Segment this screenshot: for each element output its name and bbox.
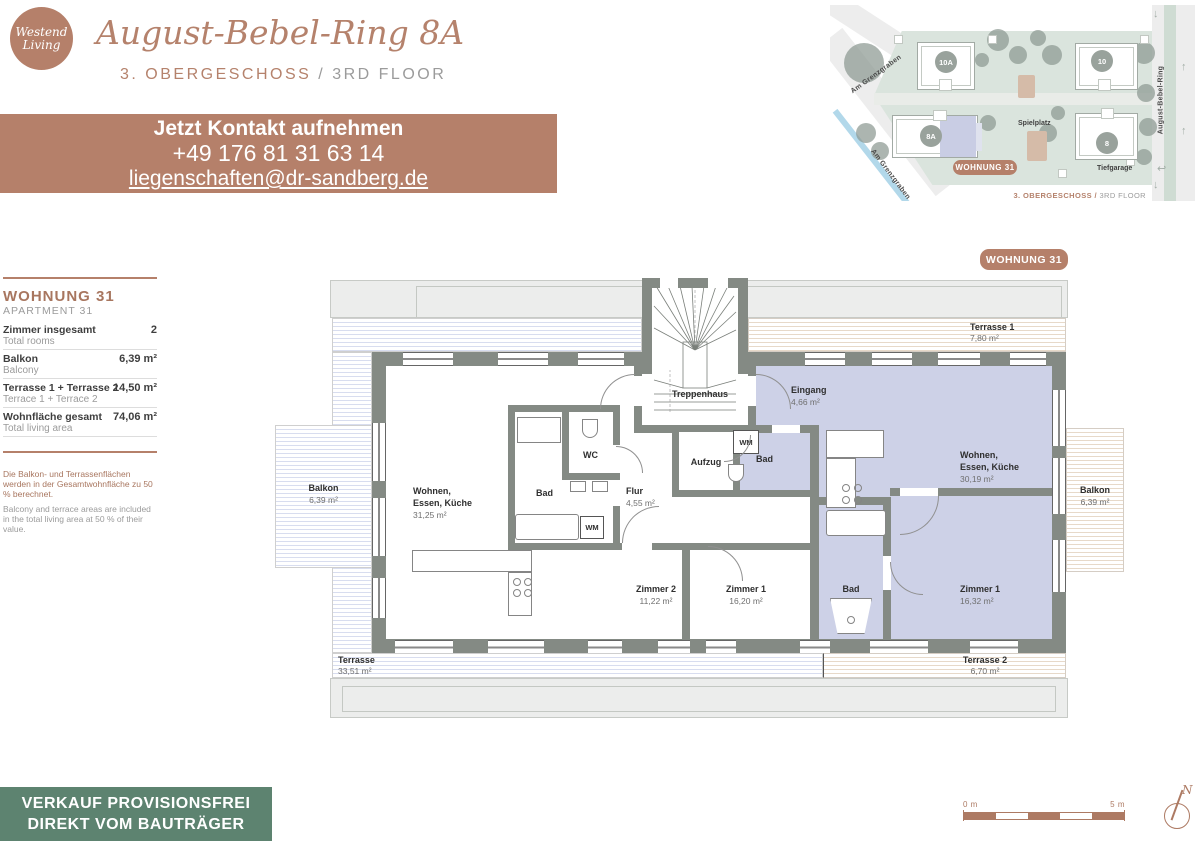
wall (738, 278, 748, 374)
sale-banner-line1: VERKAUF PROVISIONSFREI (22, 793, 251, 814)
window (498, 352, 548, 366)
logo-line1: Westend (16, 26, 68, 39)
info-title-en: APARTMENT 31 (3, 305, 157, 317)
shower (517, 417, 561, 443)
info-note-de: Die Balkon- und Terrassenflächen werden … (3, 469, 157, 499)
bathtub (515, 514, 579, 540)
scale-bar-segments (963, 812, 1125, 820)
wall (613, 405, 620, 445)
stove-burner (524, 589, 532, 597)
room-area: 6,39 m² (275, 495, 372, 505)
room-area: 6,39 m² (1066, 497, 1124, 507)
map-apartment-badge: WOHNUNG 31 (953, 160, 1017, 175)
door-opening (900, 488, 938, 496)
sink (570, 481, 586, 492)
building-8-label: 8 (1096, 132, 1118, 154)
site-detail-square (1058, 169, 1067, 178)
building-8-entrance (1101, 108, 1114, 119)
info-row-value: 6,39 m² (119, 353, 157, 365)
window (872, 352, 912, 366)
room-label: Balkon (275, 483, 372, 493)
room-label: Terrasse 2 (930, 655, 1040, 665)
room-label: Bad (536, 488, 553, 498)
contact-banner: Jetzt Kontakt aufnehmen +49 176 81 31 63… (0, 114, 557, 193)
door-opening (772, 425, 800, 433)
stove-burner (842, 484, 850, 492)
room-label: Bad (830, 584, 872, 594)
room-label: Bad (756, 454, 773, 464)
map-caption-de: 3. OBERGESCHOSS / (1013, 191, 1097, 200)
window (1052, 540, 1066, 592)
wall (642, 278, 652, 374)
divider (3, 277, 157, 279)
sale-banner: VERKAUF PROVISIONSFREI DIREKT VOM BAUTRÄ… (0, 787, 272, 841)
wall (642, 278, 748, 288)
window (1052, 458, 1066, 514)
underground-garage-label: Tiefgarage (1097, 165, 1132, 172)
tree-icon (856, 123, 876, 143)
stove-burner (854, 484, 862, 492)
room-area: 4,55 m² (626, 498, 655, 508)
terrace-band-neighbor (332, 318, 642, 352)
wall (810, 425, 819, 640)
tree-icon (975, 53, 989, 67)
playground-area (1018, 75, 1035, 98)
door-opening (634, 376, 642, 406)
traffic-turn-arrow-icon: ↩ (1157, 162, 1166, 175)
scale-bar: 0 m 5 m (963, 800, 1125, 820)
stairs-drawing (652, 284, 738, 420)
info-row-label-de: Zimmer insgesamt (3, 324, 157, 336)
info-row: Balkon Balcony 6,39 m² (3, 350, 157, 379)
room-area: 16,20 m² (710, 596, 782, 606)
info-title-de: WOHNUNG 31 (3, 288, 157, 305)
sink (592, 481, 608, 492)
north-label: N (1182, 783, 1193, 797)
tree-icon (1137, 84, 1155, 102)
map-caption-en: 3RD FLOOR (1099, 191, 1146, 200)
building-8A-highlight-tab (976, 123, 982, 151)
contact-heading: Jetzt Kontakt aufnehmen (154, 116, 404, 141)
room-label: Terrasse 1 (970, 322, 1014, 332)
window (1010, 352, 1046, 366)
building-10A-label: 10A (935, 51, 957, 73)
site-detail-square (1140, 35, 1149, 44)
building-8A-entrance (933, 110, 947, 121)
room-label: Essen, Küche (413, 498, 472, 508)
window (938, 352, 980, 366)
wall (682, 550, 690, 640)
room-area: 31,25 m² (413, 510, 447, 520)
stove-burner (513, 589, 521, 597)
map-caption: 3. OBERGESCHOSS / 3RD FLOOR (920, 191, 1146, 200)
stove-burner (842, 496, 850, 504)
stove-burner (524, 578, 532, 586)
kitchen-counter (826, 458, 856, 508)
sale-banner-line2: DIREKT VOM BAUTRÄGER (27, 814, 244, 835)
traffic-arrow-down-icon: ↓ (1153, 179, 1159, 191)
north-arrow-icon: N (1160, 783, 1200, 835)
window (372, 423, 386, 481)
window (578, 352, 624, 366)
info-row-label-en: Balcony (3, 365, 157, 376)
wall (508, 543, 620, 550)
roof-band-bottom-outline (342, 686, 1056, 712)
room-label: Terrasse (338, 655, 375, 665)
info-row: Terrasse 1 + Terrasse 2 Terrace 1 + Terr… (3, 379, 157, 408)
divider (3, 451, 157, 453)
room-label: Zimmer 2 (620, 584, 692, 594)
info-row: Zimmer insgesamt Total rooms 2 (3, 321, 157, 350)
tree-icon (1051, 106, 1065, 120)
traffic-arrow-up-icon: ↑ (1181, 61, 1187, 73)
wall (562, 405, 569, 480)
info-row-label-en: Total rooms (3, 336, 157, 347)
playground-area (1027, 131, 1047, 161)
site-detail-square (988, 35, 997, 44)
room-label: Zimmer 1 (710, 584, 782, 594)
window (708, 278, 728, 288)
floor-subtitle-divider: / (318, 66, 325, 83)
window (1052, 390, 1066, 446)
tree-icon (1136, 149, 1152, 165)
wall (562, 473, 620, 480)
door-swing (708, 546, 743, 581)
room-label: Zimmer 1 (960, 584, 1000, 594)
room-label: Wohnen, (413, 486, 451, 496)
window (372, 498, 386, 556)
room-label: WC (583, 450, 598, 460)
tree-icon (980, 115, 996, 131)
room-label: Wohnen, (960, 450, 998, 460)
room-label: Eingang (791, 385, 827, 395)
building-10-entrance (1098, 79, 1111, 91)
door-opening (622, 543, 652, 550)
building-8A-label: 8A (920, 125, 942, 147)
scale-end-label: 5 m (1110, 800, 1125, 809)
room-area: 4,66 m² (791, 397, 820, 407)
walkway (874, 93, 1152, 105)
info-row-value: 2 (151, 324, 157, 336)
washing-machine-label: WM (585, 523, 598, 532)
tree-icon (1009, 46, 1027, 64)
door-swing (600, 374, 635, 409)
stove-burner (854, 496, 862, 504)
apartment-info-panel: WOHNUNG 31 APARTMENT 31 Zimmer insgesamt… (3, 277, 157, 534)
kitchen-counter (412, 550, 532, 572)
scale-start-label: 0 m (963, 800, 978, 809)
window (805, 352, 845, 366)
logo-line2: Living (23, 39, 61, 52)
building-8A-highlight (940, 116, 976, 157)
room-label: Treppenhaus (655, 389, 745, 399)
info-row: Wohnfläche gesamt Total living area 74,0… (3, 408, 157, 437)
building-10A-entrance (939, 79, 952, 91)
door-swing (616, 446, 643, 473)
room-label: Balkon (1066, 485, 1124, 495)
room-label: Flur (626, 486, 643, 496)
page-title: August-Bebel-Ring 8A (120, 0, 440, 64)
shower-drain (847, 616, 855, 624)
tree-icon (1042, 45, 1062, 65)
room-area: 16,32 m² (960, 596, 994, 606)
room-area: 7,80 m² (970, 333, 999, 343)
info-row-label-en: Total living area (3, 423, 157, 434)
bathtub (826, 510, 886, 536)
info-row-label-en: Terrace 1 + Terrace 2 (3, 394, 157, 405)
contact-email-link[interactable]: liegenschaften@dr-sandberg.de (129, 166, 428, 191)
contact-phone: +49 176 81 31 63 14 (173, 141, 385, 166)
floorplan-apartment-badge: WOHNUNG 31 (980, 249, 1068, 270)
brand-logo: Westend Living (10, 7, 73, 70)
room-area: 11,22 m² (620, 596, 692, 606)
playground-label: Spielplatz (1018, 120, 1051, 127)
window (372, 578, 386, 618)
toilet (728, 464, 744, 482)
window (660, 278, 678, 288)
building-10-label: 10 (1091, 50, 1113, 72)
terrace1-band (748, 318, 1066, 352)
room-area: 33,51 m² (338, 666, 372, 676)
floor-subtitle: 3. OBERGESCHOSS / 3RD FLOOR (120, 66, 440, 84)
floor-subtitle-de: 3. OBERGESCHOSS (120, 66, 311, 83)
tree-icon (1139, 118, 1157, 136)
room-area: 30,19 m² (960, 474, 994, 484)
info-note-en: Balcony and terrace areas are included i… (3, 504, 157, 534)
info-row-value: 74,06 m² (113, 411, 157, 423)
room-label: Essen, Küche (960, 462, 1019, 472)
kitchen-counter (826, 430, 884, 458)
tree-icon (1030, 30, 1046, 46)
window (403, 352, 453, 366)
floor-subtitle-en: 3RD FLOOR (332, 66, 446, 83)
stove-burner (513, 578, 521, 586)
north-circle (1164, 803, 1190, 829)
toilet (582, 419, 598, 438)
door-swing (622, 506, 659, 543)
floor-plan: Aufzug WM WM Balkon 6,39 m² Balkon 6,39 … (270, 278, 1130, 718)
traffic-arrow-down-icon: ↓ (1153, 8, 1159, 20)
door-opening (748, 376, 756, 406)
traffic-arrow-up-icon: ↑ (1181, 125, 1187, 137)
apartment-31-area (752, 366, 1052, 425)
washing-machine: WM (580, 516, 604, 539)
street-label-august-bebel-ring: August-Bebel-Ring (1158, 66, 1165, 134)
terrace-main (332, 653, 823, 678)
wall (508, 405, 515, 550)
site-detail-square (894, 35, 903, 44)
site-map: 10A 10 8A 8 Spielplatz Tiefgarage Am Gre… (830, 5, 1195, 201)
info-row-value: 14,50 m² (113, 382, 157, 394)
room-area: 6,70 m² (930, 666, 1040, 676)
wall (613, 506, 620, 550)
